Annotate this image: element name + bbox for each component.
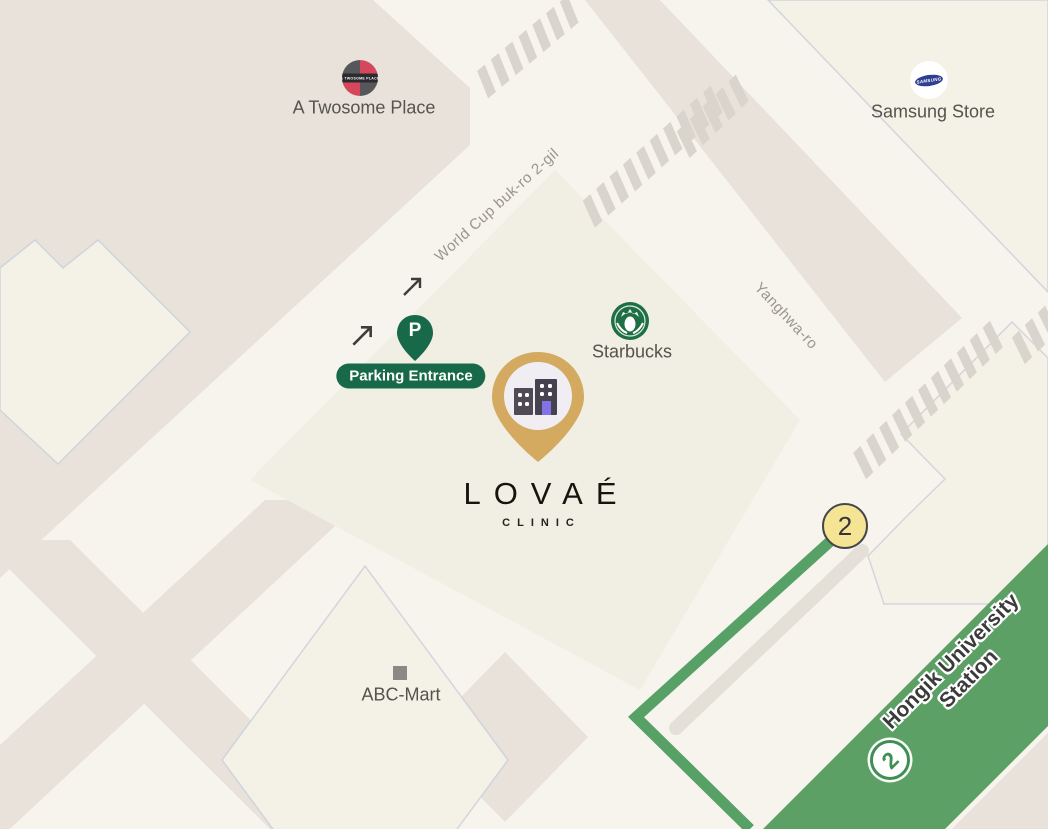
samsung-logo-icon: SAMSUNG — [910, 61, 948, 99]
twosome-place-logo-icon: A TWOSOME PLACE — [342, 60, 378, 96]
station-exit-badge: 2 — [822, 503, 868, 549]
starbucks-logo-icon — [610, 301, 650, 341]
starbucks-label: Starbucks — [592, 342, 672, 363]
clinic-subtitle: CLINIC — [495, 517, 581, 529]
line-number: 2 — [876, 746, 904, 774]
samsung-logo-text: SAMSUNG — [916, 76, 942, 84]
parking-entrance-badge: Parking Entrance — [336, 364, 485, 389]
twosome-place-label: A Twosome Place — [293, 98, 436, 119]
parking-pin-letter: P — [396, 320, 434, 342]
abc-mart-label: ABC-Mart — [361, 685, 440, 706]
abc-mart-icon — [393, 666, 407, 680]
arrow-up-right-icon — [349, 323, 375, 349]
clinic-map-pin — [490, 350, 586, 464]
samsung-store-label: Samsung Store — [871, 102, 995, 123]
exit-number: 2 — [838, 511, 852, 542]
subway-line-2-badge: 2 — [870, 740, 910, 780]
twosome-logo-text: A TWOSOME PLACE — [342, 76, 378, 80]
clinic-name: LOVAÉ — [450, 476, 629, 512]
clinic-location-map: A TWOSOME PLACE A Twosome Place SAMSUNG … — [0, 0, 1048, 829]
parking-pin: P — [396, 314, 434, 362]
arrow-up-right-icon — [400, 275, 424, 299]
